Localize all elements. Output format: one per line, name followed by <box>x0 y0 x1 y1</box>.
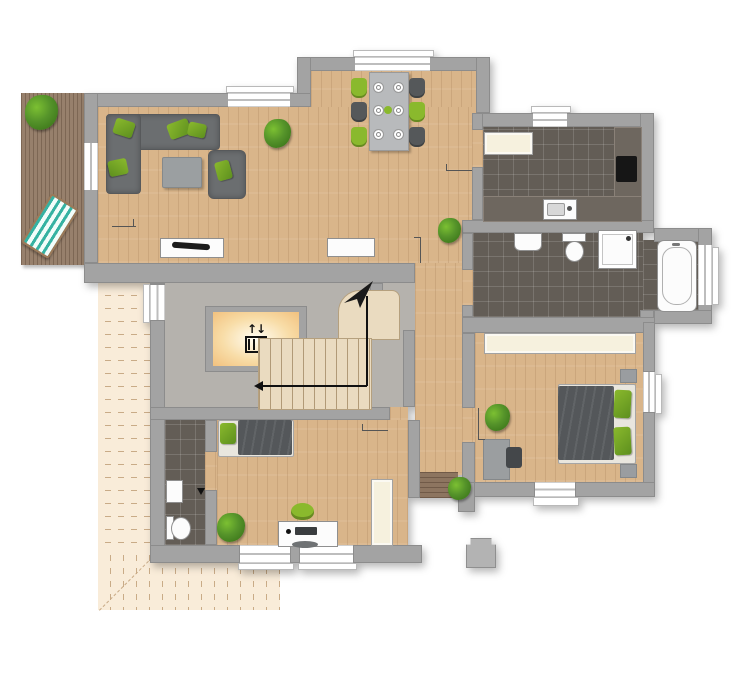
wall-segment <box>643 322 655 372</box>
door-mark <box>420 237 421 263</box>
door-mark <box>362 430 388 431</box>
sink-basin <box>547 203 565 216</box>
window <box>355 57 430 71</box>
bed-pillow <box>220 423 236 444</box>
wall-segment <box>205 490 217 545</box>
north-arrow-icon <box>344 281 374 308</box>
stair-direction-line-v <box>366 296 368 386</box>
door-mark <box>414 237 421 238</box>
wall-segment <box>290 545 300 563</box>
wall-segment <box>476 57 490 113</box>
wall-segment <box>472 113 483 130</box>
dining-chair-green <box>409 102 425 122</box>
window-sill <box>531 106 571 113</box>
window <box>533 113 567 127</box>
kitchen-tall-cabinet <box>484 132 533 155</box>
plate <box>393 82 404 93</box>
floor-plan-canvas: ↑↓ <box>0 0 746 680</box>
window <box>228 93 290 107</box>
hallway-floor <box>415 263 462 475</box>
desk-keyboard <box>295 527 317 535</box>
window-sill <box>226 86 294 93</box>
wall-segment <box>150 320 165 563</box>
plate <box>393 129 404 140</box>
plate <box>393 105 404 116</box>
wall-segment <box>462 317 655 333</box>
window-sill <box>298 563 357 570</box>
wall-segment <box>462 233 473 270</box>
window-sill <box>238 563 294 570</box>
shower-drain <box>626 236 631 241</box>
wall-segment <box>462 305 473 317</box>
table-centerpiece <box>384 106 392 114</box>
sink-faucet <box>567 206 572 211</box>
window-sill <box>533 497 579 506</box>
stair-direction-arrowhead <box>254 381 263 391</box>
door-mark <box>133 219 134 227</box>
door-mark <box>446 164 447 171</box>
bedroom-right-chair <box>506 447 522 468</box>
window-sill <box>655 374 662 414</box>
threshold <box>472 130 483 167</box>
wall-segment <box>403 330 415 407</box>
door-mark <box>446 170 472 171</box>
wall-segment <box>150 545 240 563</box>
chimney <box>466 538 496 568</box>
building: ↑↓ <box>0 0 746 680</box>
wall-segment <box>84 263 415 283</box>
bathtub-basin <box>662 247 692 305</box>
desk-lamp <box>286 529 291 534</box>
wall-segment <box>462 333 475 408</box>
wall-segment <box>472 167 483 220</box>
dining-chair-green <box>351 78 367 98</box>
window <box>535 482 575 497</box>
wall-segment <box>640 113 654 228</box>
window-sill <box>353 50 434 57</box>
dining-chair-green <box>351 127 367 147</box>
nightstand <box>620 464 637 478</box>
door-mark <box>478 408 479 440</box>
wall-segment <box>408 420 420 498</box>
window <box>240 545 290 563</box>
bedroom-bottom-wardrobe <box>371 479 393 546</box>
window-sill <box>712 247 719 305</box>
bed-pillow <box>613 390 631 419</box>
shower <box>598 230 637 269</box>
threshold <box>462 270 473 305</box>
double-bed-blanket <box>558 386 614 460</box>
bed-pillow <box>613 427 631 456</box>
wc-toilet-bowl <box>171 517 191 540</box>
wall-segment <box>575 482 655 497</box>
door-mark <box>478 439 485 440</box>
single-bed-blanket <box>238 420 292 455</box>
window <box>150 285 165 320</box>
window-sill <box>143 284 150 323</box>
threshold <box>462 408 475 442</box>
window <box>84 143 98 190</box>
dining-chair-gray <box>351 102 367 122</box>
office-chair <box>291 503 314 520</box>
wc-wall-cabinet <box>166 480 183 503</box>
threshold <box>390 407 408 420</box>
wall-segment <box>353 545 422 563</box>
threshold <box>205 452 217 490</box>
washbasin <box>514 233 542 251</box>
coffee-table <box>162 157 202 188</box>
wall-segment <box>205 420 217 452</box>
cooktop <box>616 156 637 182</box>
wc-door-arrow <box>197 488 205 495</box>
dining-chair-gray <box>409 127 425 147</box>
chair-mat <box>292 541 318 548</box>
bedroom-right-wardrobe <box>484 333 636 354</box>
nightstand <box>620 369 637 383</box>
plate <box>373 129 384 140</box>
bathtub-faucet <box>672 243 680 246</box>
dining-chair-gray <box>409 78 425 98</box>
sideboard <box>327 238 375 257</box>
plate <box>373 82 384 93</box>
stair-direction-line-h <box>262 385 367 387</box>
staircase <box>258 338 372 410</box>
door-mark <box>362 424 363 431</box>
wall-segment <box>654 310 712 324</box>
toilet-bowl <box>565 241 584 262</box>
plate <box>373 105 384 116</box>
window <box>643 372 655 412</box>
window <box>698 245 712 305</box>
elevator-arrows-glyph: ↑↓ <box>244 324 268 335</box>
